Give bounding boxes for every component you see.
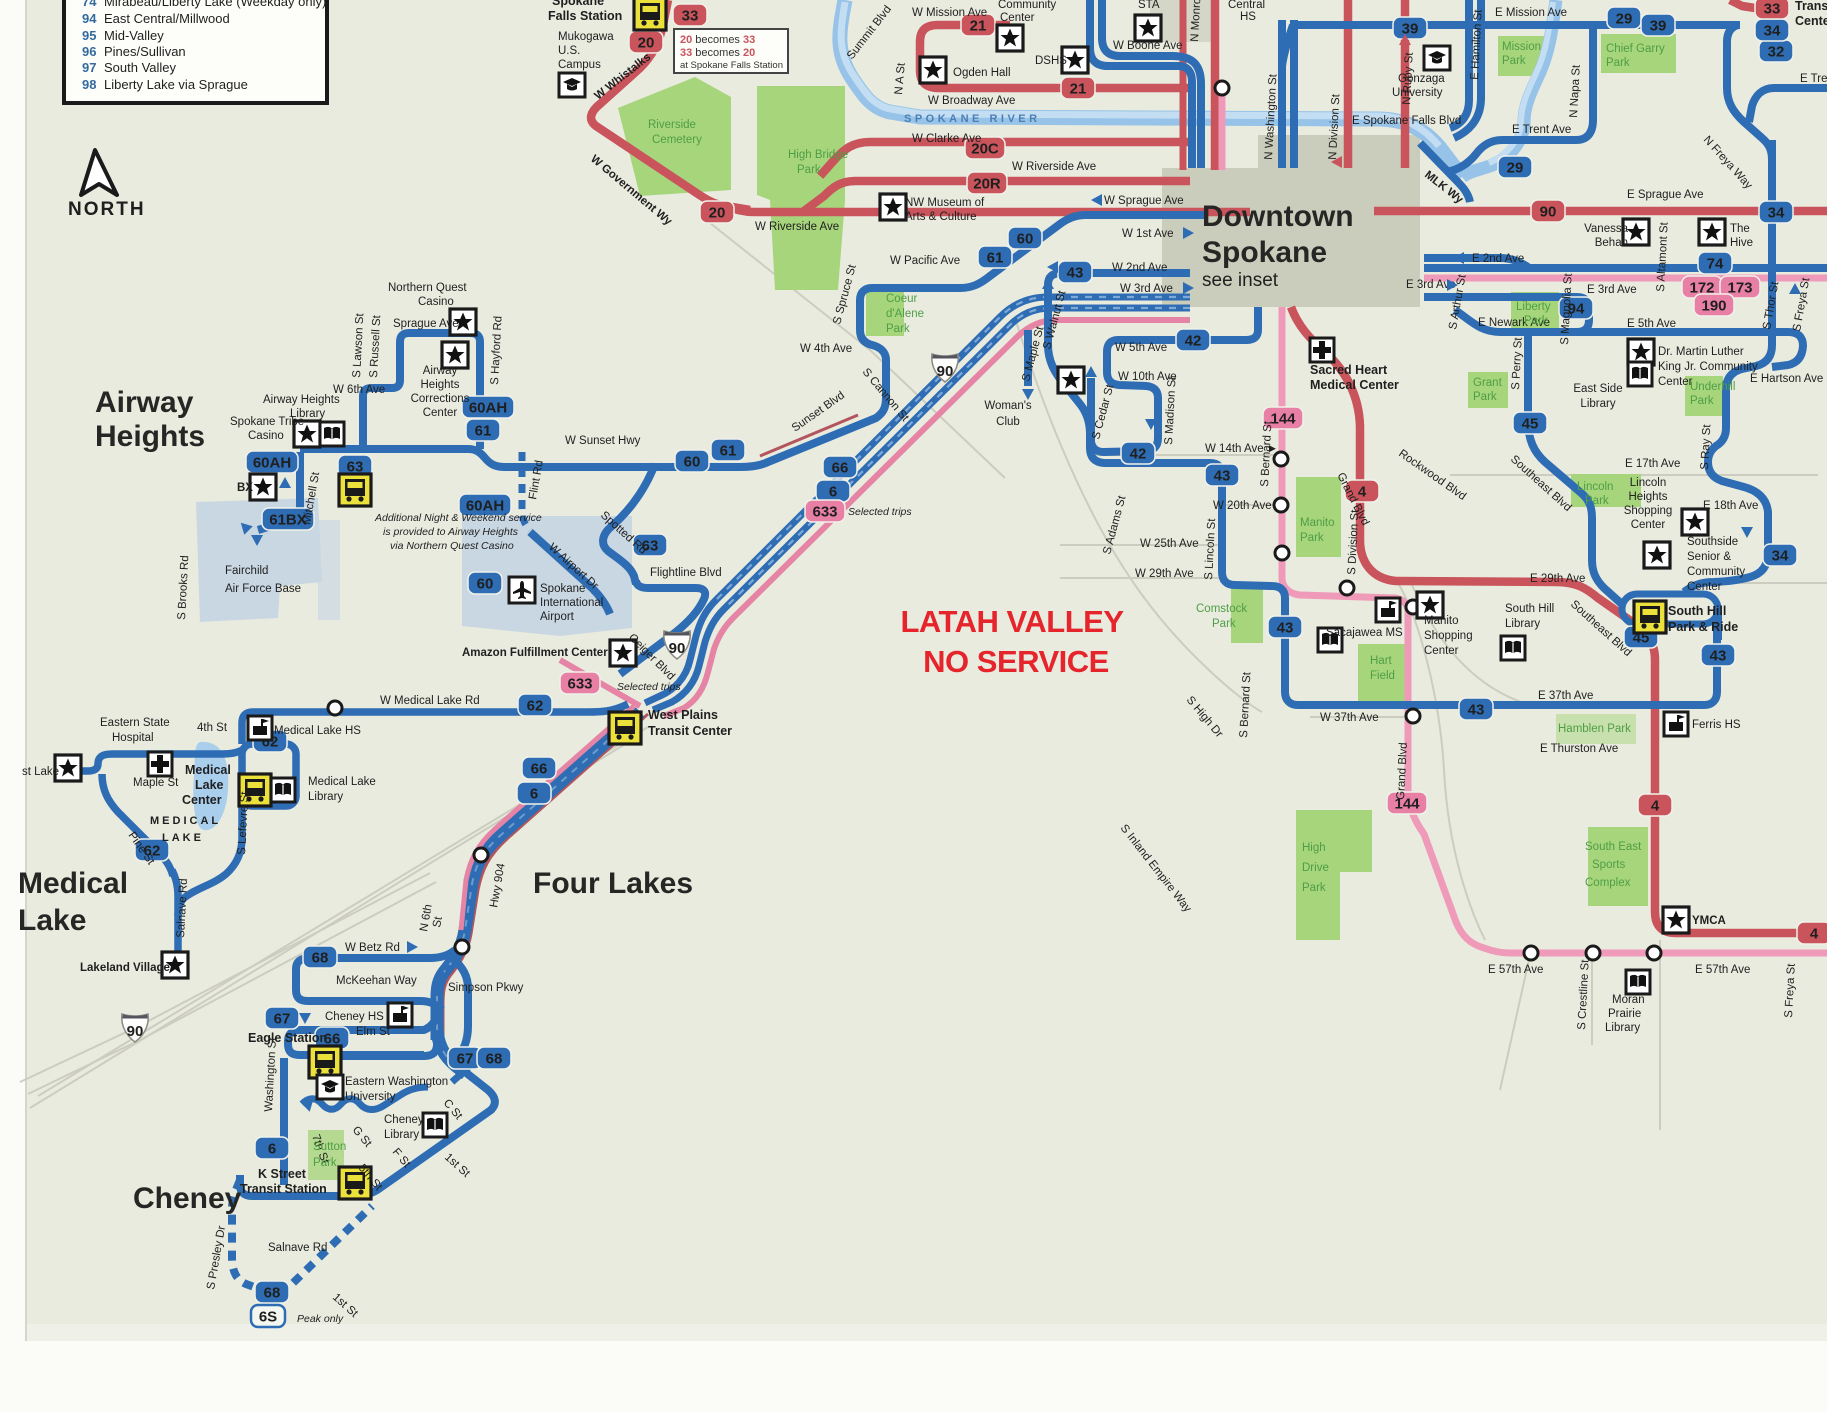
svg-text:Heights: Heights — [421, 379, 460, 391]
svg-text:W 4th Ave: W 4th Ave — [800, 343, 852, 355]
svg-text:43: 43 — [1277, 620, 1294, 637]
svg-text:Airway Heights: Airway Heights — [263, 394, 340, 406]
svg-text:Manito: Manito — [1300, 517, 1335, 529]
svg-text:Library: Library — [308, 791, 343, 803]
svg-text:Park: Park — [1606, 57, 1630, 69]
svg-text:King Jr. Community: King Jr. Community — [1658, 361, 1758, 373]
svg-text:Airport: Airport — [540, 611, 575, 623]
svg-text:Sacred Heart: Sacred Heart — [1310, 363, 1388, 377]
svg-text:E Tre: E Tre — [1800, 73, 1827, 85]
svg-text:Center: Center — [1795, 14, 1827, 28]
svg-text:BX: BX — [237, 482, 253, 494]
svg-text:E 3rd Ave: E 3rd Ave — [1587, 284, 1637, 296]
svg-text:Selected trips: Selected trips — [617, 681, 681, 693]
svg-text:K Street: K Street — [258, 1167, 307, 1181]
svg-text:Park: Park — [1524, 315, 1548, 327]
svg-text:42: 42 — [1185, 333, 1202, 350]
svg-text:20R: 20R — [973, 176, 1001, 193]
svg-text:W 1st Ave: W 1st Ave — [1122, 228, 1174, 240]
svg-text:Lakeland Village: Lakeland Village — [80, 962, 170, 974]
svg-text:Ferris HS: Ferris HS — [1692, 719, 1741, 731]
svg-text:Riverside: Riverside — [648, 119, 696, 131]
svg-text:West Plains: West Plains — [648, 708, 718, 722]
svg-text:Lake: Lake — [18, 904, 86, 937]
svg-text:Trans: Trans — [1795, 0, 1827, 13]
svg-text:Senior &: Senior & — [1687, 551, 1731, 563]
svg-text:W 5th Ave: W 5th Ave — [1115, 342, 1167, 354]
svg-text:Library: Library — [384, 1129, 419, 1141]
svg-text:Arts & Culture: Arts & Culture — [905, 211, 977, 223]
svg-text:W 6th Ave: W 6th Ave — [333, 384, 385, 396]
svg-text:East Central/Millwood: East Central/Millwood — [104, 11, 230, 26]
svg-text:E 37th Ave: E 37th Ave — [1538, 690, 1593, 702]
svg-text:Park: Park — [313, 1157, 337, 1169]
svg-text:61: 61 — [720, 443, 737, 460]
svg-text:W Clarke Ave: W Clarke Ave — [912, 133, 981, 145]
svg-text:Ogden Hall: Ogden Hall — [953, 67, 1011, 79]
svg-text:W Mission Ave: W Mission Ave — [912, 7, 987, 19]
svg-text:W 25th Ave: W 25th Ave — [1140, 538, 1199, 550]
svg-text:Transit Station: Transit Station — [240, 1182, 327, 1196]
svg-text:29: 29 — [1616, 11, 1633, 28]
svg-text:Park: Park — [1473, 391, 1497, 403]
svg-text:6: 6 — [829, 484, 837, 501]
svg-text:W Sprague Ave: W Sprague Ave — [1104, 195, 1184, 207]
svg-text:Casino: Casino — [248, 430, 284, 442]
svg-text:144: 144 — [1270, 411, 1296, 428]
svg-text:61: 61 — [475, 423, 492, 440]
svg-text:Behan: Behan — [1595, 237, 1628, 249]
svg-text:67: 67 — [457, 1051, 474, 1068]
svg-text:39: 39 — [1650, 18, 1667, 35]
svg-text:LAKE: LAKE — [162, 832, 204, 844]
svg-text:Mirabeau/Liberty Lake (Weekday: Mirabeau/Liberty Lake (Weekday only) — [104, 0, 326, 9]
svg-text:Park & Ride: Park & Ride — [1668, 620, 1738, 634]
svg-text:90: 90 — [1540, 204, 1557, 221]
svg-text:Library: Library — [1580, 398, 1615, 410]
svg-text:74: 74 — [82, 0, 97, 9]
svg-text:60AH: 60AH — [253, 455, 291, 472]
svg-text:43: 43 — [1214, 468, 1231, 485]
svg-text:34: 34 — [1768, 205, 1785, 222]
svg-text:39: 39 — [1402, 21, 1419, 38]
svg-text:29: 29 — [1507, 160, 1524, 177]
svg-text:E 29th Ave: E 29th Ave — [1530, 573, 1585, 585]
svg-text:Elm St: Elm St — [356, 1026, 391, 1038]
svg-text:Central: Central — [1228, 0, 1265, 11]
svg-text:Lincoln: Lincoln — [1577, 481, 1613, 493]
svg-text:Additional Night & Weekend ser: Additional Night & Weekend service — [374, 512, 542, 524]
svg-text:Center: Center — [1424, 645, 1459, 657]
svg-text:Four Lakes: Four Lakes — [533, 867, 693, 900]
svg-text:34: 34 — [1764, 23, 1781, 40]
svg-text:60AH: 60AH — [469, 400, 507, 417]
svg-text:Park: Park — [1690, 395, 1714, 407]
svg-text:21: 21 — [1070, 81, 1087, 98]
svg-text:Center: Center — [1000, 12, 1035, 24]
svg-text:Eastern Washington: Eastern Washington — [345, 1076, 448, 1088]
svg-text:6: 6 — [268, 1141, 276, 1158]
svg-text:DSHS: DSHS — [1035, 55, 1067, 67]
svg-text:Spokane: Spokane — [552, 0, 604, 8]
svg-text:Campus: Campus — [558, 59, 601, 71]
svg-text:45: 45 — [1522, 416, 1539, 433]
svg-text:Drive: Drive — [1302, 862, 1329, 874]
svg-text:Park: Park — [1300, 532, 1324, 544]
svg-text:East Side: East Side — [1573, 383, 1622, 395]
svg-text:Flightline Blvd: Flightline Blvd — [650, 567, 722, 579]
svg-text:Eastern State: Eastern State — [100, 717, 170, 729]
svg-text:Heights: Heights — [1629, 491, 1668, 503]
svg-text:Gonzaga: Gonzaga — [1398, 73, 1445, 85]
svg-text:Cemetery: Cemetery — [652, 134, 702, 146]
svg-text:W 20th Ave: W 20th Ave — [1213, 500, 1272, 512]
svg-text:Cheney: Cheney — [133, 1182, 242, 1215]
svg-text:Peak only: Peak only — [297, 1313, 344, 1325]
svg-text:Vanessa: Vanessa — [1584, 223, 1629, 235]
svg-text:Park: Park — [1502, 55, 1526, 67]
svg-text:Medical Lake: Medical Lake — [308, 776, 376, 788]
svg-text:via Northern Quest Casino: via Northern Quest Casino — [390, 540, 514, 552]
svg-text:Library: Library — [1605, 1022, 1640, 1034]
svg-text:E Thurston Ave: E Thurston Ave — [1540, 743, 1618, 755]
svg-text:Sprague Ave: Sprague Ave — [393, 318, 459, 330]
svg-text:43: 43 — [1710, 648, 1727, 665]
svg-text:Medical Lake HS: Medical Lake HS — [274, 725, 361, 737]
svg-text:Northern Quest: Northern Quest — [388, 282, 467, 294]
svg-text:66: 66 — [832, 460, 849, 477]
svg-text:66: 66 — [531, 761, 548, 778]
svg-text:The: The — [1730, 223, 1750, 235]
svg-text:Coeur: Coeur — [886, 293, 917, 305]
svg-text:74: 74 — [1707, 256, 1724, 273]
svg-text:LATAH VALLEY: LATAH VALLEY — [900, 604, 1124, 639]
svg-text:Lincoln: Lincoln — [1630, 477, 1666, 489]
svg-text:STA: STA — [1138, 0, 1160, 11]
svg-text:High Bridge: High Bridge — [788, 149, 848, 161]
svg-text:97: 97 — [82, 60, 96, 75]
svg-text:Salnave Rd: Salnave Rd — [268, 1242, 327, 1254]
svg-text:34: 34 — [1772, 548, 1789, 565]
svg-text:Shopping: Shopping — [1424, 630, 1473, 642]
svg-text:Park: Park — [1585, 495, 1609, 507]
svg-text:Southside: Southside — [1687, 536, 1738, 548]
svg-text:Park: Park — [1302, 882, 1326, 894]
svg-text:st Lake: st Lake — [22, 766, 59, 778]
svg-text:21: 21 — [970, 18, 987, 35]
svg-text:see inset: see inset — [1202, 270, 1279, 291]
svg-text:Manito: Manito — [1424, 615, 1459, 627]
svg-text:Community: Community — [998, 0, 1056, 11]
svg-text:Park: Park — [797, 164, 821, 176]
svg-text:Cheney HS: Cheney HS — [325, 1011, 384, 1023]
svg-text:W Boone Ave: W Boone Ave — [1113, 40, 1182, 52]
svg-text:Community: Community — [1687, 566, 1745, 578]
svg-text:Heights: Heights — [95, 420, 205, 453]
svg-text:Hart: Hart — [1370, 655, 1393, 667]
svg-text:20 becomes 33: 20 becomes 33 — [680, 34, 755, 46]
svg-text:Park: Park — [886, 323, 910, 335]
svg-text:173: 173 — [1727, 280, 1752, 297]
svg-text:W Riverside Ave: W Riverside Ave — [1012, 161, 1096, 173]
svg-text:Prairie: Prairie — [1608, 1008, 1641, 1020]
svg-text:4: 4 — [1651, 798, 1660, 815]
svg-text:62: 62 — [527, 698, 544, 715]
svg-text:Amazon Fulfillment Center: Amazon Fulfillment Center — [462, 647, 608, 659]
svg-text:Shopping: Shopping — [1624, 505, 1673, 517]
svg-text:Pines/Sullivan: Pines/Sullivan — [104, 44, 186, 59]
svg-text:International: International — [540, 597, 603, 609]
svg-text:SPOKANE RIVER: SPOKANE RIVER — [904, 113, 1041, 125]
svg-text:43: 43 — [1067, 265, 1084, 282]
svg-text:68: 68 — [486, 1051, 503, 1068]
svg-text:Center: Center — [1631, 519, 1666, 531]
svg-text:43: 43 — [1468, 702, 1485, 719]
svg-text:60: 60 — [684, 454, 701, 471]
svg-text:Comstock: Comstock — [1196, 603, 1247, 615]
svg-text:Sacajawea MS: Sacajawea MS — [1326, 627, 1403, 639]
svg-text:W 2nd Ave: W 2nd Ave — [1112, 262, 1167, 274]
svg-text:Spokane: Spokane — [540, 583, 585, 595]
svg-text:at Spokane Falls Station: at Spokane Falls Station — [680, 60, 783, 71]
svg-text:Field: Field — [1370, 670, 1395, 682]
svg-text:68: 68 — [312, 950, 329, 967]
svg-text:20: 20 — [709, 205, 726, 222]
svg-text:Fairchild: Fairchild — [225, 565, 268, 577]
svg-text:Mid-Valley: Mid-Valley — [104, 28, 164, 43]
svg-text:W Pacific Ave: W Pacific Ave — [890, 255, 960, 267]
svg-text:Grant: Grant — [1473, 377, 1503, 389]
svg-text:33: 33 — [682, 8, 699, 25]
svg-text:Airway: Airway — [423, 365, 458, 377]
svg-text:W Medical Lake Rd: W Medical Lake Rd — [380, 695, 480, 707]
svg-text:633: 633 — [567, 676, 592, 693]
svg-text:Chief Garry: Chief Garry — [1606, 43, 1665, 55]
svg-text:4th St: 4th St — [197, 722, 228, 734]
svg-text:Moran: Moran — [1612, 994, 1645, 1006]
svg-text:Casino: Casino — [418, 296, 454, 308]
svg-text:Eagle Station: Eagle Station — [248, 1031, 327, 1045]
svg-text:E 2nd Ave: E 2nd Ave — [1472, 253, 1524, 265]
svg-text:Liberty Lake via Sprague: Liberty Lake via Sprague — [104, 77, 248, 92]
svg-text:Mukogawa: Mukogawa — [558, 31, 614, 43]
svg-text:Selected trips: Selected trips — [848, 506, 912, 518]
svg-text:E 5th Ave: E 5th Ave — [1627, 318, 1676, 330]
svg-text:Medical Center: Medical Center — [1310, 378, 1399, 392]
svg-text:High: High — [1302, 842, 1326, 854]
svg-text:Center: Center — [1687, 581, 1722, 593]
svg-text:NW Museum of: NW Museum of — [905, 197, 985, 209]
svg-text:Club: Club — [996, 416, 1020, 428]
svg-text:Spokane: Spokane — [1202, 236, 1327, 269]
svg-text:68: 68 — [264, 1285, 281, 1302]
svg-text:Medical: Medical — [18, 867, 128, 900]
svg-text:Downtown: Downtown — [1202, 200, 1354, 233]
svg-text:Airway: Airway — [95, 386, 194, 419]
svg-text:Medical: Medical — [185, 763, 231, 777]
svg-text:32: 32 — [1768, 44, 1785, 61]
svg-text:E 57th Ave: E 57th Ave — [1488, 964, 1543, 976]
svg-text:Cheney: Cheney — [384, 1114, 424, 1126]
svg-text:HS: HS — [1240, 11, 1256, 23]
svg-text:E Sprague Ave: E Sprague Ave — [1627, 189, 1704, 201]
svg-text:Underhill: Underhill — [1690, 381, 1735, 393]
svg-text:Air Force Base: Air Force Base — [225, 583, 301, 595]
svg-text:33: 33 — [1764, 1, 1781, 18]
svg-text:60: 60 — [1017, 231, 1034, 248]
svg-text:W 3rd Ave: W 3rd Ave — [1120, 283, 1173, 295]
svg-text:Hamblen Park: Hamblen Park — [1558, 723, 1631, 735]
svg-text:95: 95 — [82, 28, 96, 43]
svg-text:61: 61 — [987, 250, 1004, 267]
svg-text:E 17th Ave: E 17th Ave — [1625, 458, 1680, 470]
svg-text:South Hill: South Hill — [1505, 603, 1554, 615]
svg-text:94: 94 — [82, 11, 97, 26]
svg-text:190: 190 — [1701, 298, 1726, 315]
svg-text:4: 4 — [1810, 926, 1819, 943]
svg-text:W Riverside Ave: W Riverside Ave — [755, 221, 839, 233]
svg-text:NORTH: NORTH — [68, 199, 146, 220]
svg-text:42: 42 — [1130, 446, 1147, 463]
svg-text:Maple St: Maple St — [133, 777, 179, 789]
svg-text:Woman's: Woman's — [984, 400, 1032, 412]
svg-text:E Mission Ave: E Mission Ave — [1495, 7, 1567, 19]
svg-text:NO SERVICE: NO SERVICE — [923, 644, 1109, 679]
svg-text:University: University — [345, 1091, 396, 1103]
svg-text:Liberty: Liberty — [1516, 301, 1551, 313]
svg-text:W Broadway Ave: W Broadway Ave — [928, 95, 1015, 107]
svg-text:McKeehan Way: McKeehan Way — [336, 975, 417, 987]
svg-text:98: 98 — [82, 77, 96, 92]
svg-text:Hive: Hive — [1730, 237, 1753, 249]
svg-text:20: 20 — [638, 35, 655, 52]
svg-text:Corrections: Corrections — [411, 393, 470, 405]
svg-text:Complex: Complex — [1585, 877, 1631, 889]
svg-text:Center: Center — [423, 407, 458, 419]
svg-text:96: 96 — [82, 44, 96, 59]
svg-text:Center: Center — [182, 793, 222, 807]
svg-text:YMCA: YMCA — [1692, 915, 1726, 927]
svg-text:E 18th Ave: E 18th Ave — [1703, 500, 1758, 512]
svg-text:6S: 6S — [259, 1309, 277, 1326]
svg-text:6: 6 — [530, 786, 538, 803]
svg-text:University: University — [1392, 87, 1443, 99]
svg-text:33 becomes 20: 33 becomes 20 — [680, 47, 755, 59]
svg-text:Hospital: Hospital — [112, 732, 154, 744]
svg-text:Transit Center: Transit Center — [648, 724, 732, 738]
svg-text:Simpson Pkwy: Simpson Pkwy — [448, 982, 524, 994]
svg-text:Library: Library — [1505, 618, 1540, 630]
svg-text:Sutton: Sutton — [313, 1141, 346, 1153]
svg-text:W 29th Ave: W 29th Ave — [1135, 568, 1194, 580]
svg-text:W Sunset Hwy: W Sunset Hwy — [565, 435, 641, 447]
svg-text:South East: South East — [1585, 841, 1642, 853]
svg-text:MEDICAL: MEDICAL — [150, 815, 221, 827]
svg-text:67: 67 — [274, 1011, 291, 1028]
svg-text:E Hartson Ave: E Hartson Ave — [1750, 373, 1823, 385]
svg-text:Sports: Sports — [1592, 859, 1625, 871]
svg-text:d'Alene: d'Alene — [886, 308, 924, 320]
svg-text:W 37th Ave: W 37th Ave — [1320, 712, 1379, 724]
svg-text:W Betz Rd: W Betz Rd — [345, 942, 400, 954]
svg-text:South Hill: South Hill — [1668, 604, 1726, 618]
svg-text:Dr. Martin Luther: Dr. Martin Luther — [1658, 346, 1744, 358]
svg-text:Mission: Mission — [1502, 41, 1541, 53]
svg-text:E Trent Ave: E Trent Ave — [1512, 124, 1571, 136]
svg-text:E 57th Ave: E 57th Ave — [1695, 964, 1750, 976]
svg-text:Park: Park — [1212, 618, 1236, 630]
svg-text:Lake: Lake — [195, 778, 224, 792]
svg-text:S Ray St: S Ray St — [1699, 423, 1713, 470]
svg-text:E Spokane Falls Blvd: E Spokane Falls Blvd — [1352, 115, 1461, 127]
svg-text:633: 633 — [812, 504, 837, 521]
svg-text:Center: Center — [1658, 376, 1693, 388]
svg-text:Falls Station: Falls Station — [548, 9, 622, 23]
svg-text:U.S.: U.S. — [558, 45, 580, 57]
svg-text:South Valley: South Valley — [104, 60, 177, 75]
svg-text:Spokane Tribe: Spokane Tribe — [230, 416, 304, 428]
svg-text:is provided to Airway Heights: is provided to Airway Heights — [383, 526, 519, 538]
svg-text:60: 60 — [477, 576, 494, 593]
